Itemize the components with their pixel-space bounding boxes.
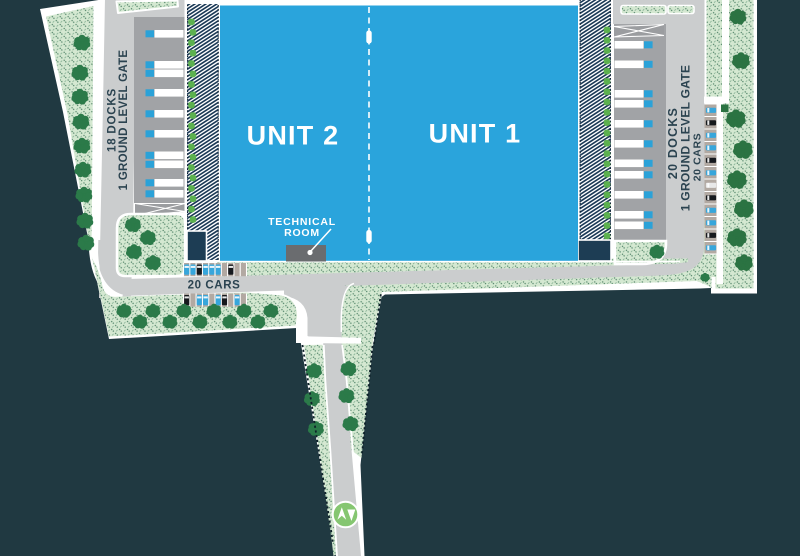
svg-text:20 CARS: 20 CARS	[692, 133, 704, 182]
svg-text:UNIT 2: UNIT 2	[247, 121, 340, 151]
svg-text:18 DOCKS: 18 DOCKS	[107, 88, 119, 152]
svg-text:UNIT 1: UNIT 1	[429, 119, 522, 149]
svg-text:1 GROUND LEVEL GATE: 1 GROUND LEVEL GATE	[679, 65, 693, 212]
svg-text:1 GROUND LEVEL GATE: 1 GROUND LEVEL GATE	[118, 50, 130, 191]
svg-text:20 CARS: 20 CARS	[188, 280, 241, 292]
svg-text:ROOM: ROOM	[284, 227, 320, 239]
